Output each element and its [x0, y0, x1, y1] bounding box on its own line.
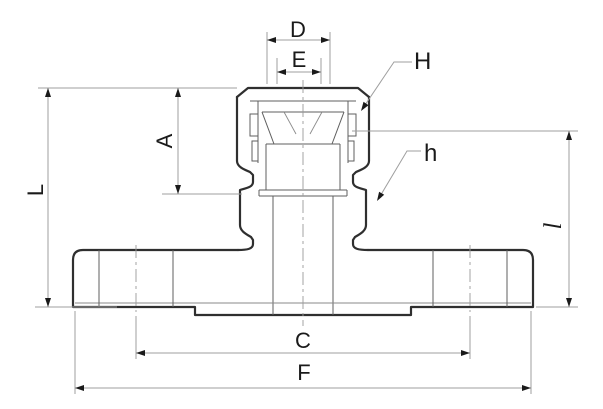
- dim-label-F: F: [297, 360, 310, 385]
- dim-label-C: C: [295, 328, 311, 353]
- arrow-L-up: [45, 88, 51, 97]
- arrow-l-down: [566, 298, 572, 307]
- leader-H: [363, 62, 412, 108]
- arrow-A-up: [175, 88, 181, 97]
- arrow-D-left: [267, 37, 276, 43]
- arrow-E-left: [277, 69, 286, 75]
- dim-label-E: E: [292, 47, 307, 72]
- arrow-h: [377, 192, 384, 201]
- drawing-canvas: D E A L l C F H: [0, 0, 603, 409]
- body-outline-right: [353, 97, 369, 250]
- arrow-C-left: [136, 350, 145, 356]
- nut-thread-step-right: [348, 114, 356, 161]
- dim-label-D: D: [290, 17, 306, 42]
- arrow-C-right: [461, 350, 470, 356]
- seat-cone-right: [310, 112, 322, 134]
- tailpiece-cone-left: [262, 112, 274, 144]
- tailpiece-cone-right: [332, 112, 344, 144]
- dim-label-A: A: [152, 133, 177, 148]
- arrow-A-down: [175, 185, 181, 194]
- arrow-E-right: [312, 69, 321, 75]
- callout-H: H: [361, 48, 431, 111]
- nut-thread-step-left: [250, 114, 258, 161]
- technical-drawing: D E A L l C F H: [0, 0, 603, 409]
- dimension-A: A: [152, 88, 242, 194]
- dimension-l: l: [352, 131, 578, 307]
- dim-label-H: H: [414, 48, 431, 75]
- internal-section-lines: [75, 80, 531, 326]
- arrow-F-left: [75, 385, 84, 391]
- arrow-F-right: [522, 385, 531, 391]
- leader-h: [379, 151, 421, 198]
- dimension-L: L: [23, 88, 117, 307]
- callout-h: h: [377, 140, 437, 201]
- dim-label-h: h: [424, 140, 437, 167]
- dim-label-L: L: [23, 184, 48, 196]
- arrow-D-right: [321, 37, 330, 43]
- seat-cone-left: [284, 112, 296, 134]
- arrow-l-up: [566, 131, 572, 140]
- body-outline-left: [237, 97, 253, 250]
- dim-label-l: l: [540, 222, 567, 229]
- arrow-H: [361, 102, 369, 111]
- dimension-E: E: [277, 47, 321, 84]
- arrow-L-down: [45, 298, 51, 307]
